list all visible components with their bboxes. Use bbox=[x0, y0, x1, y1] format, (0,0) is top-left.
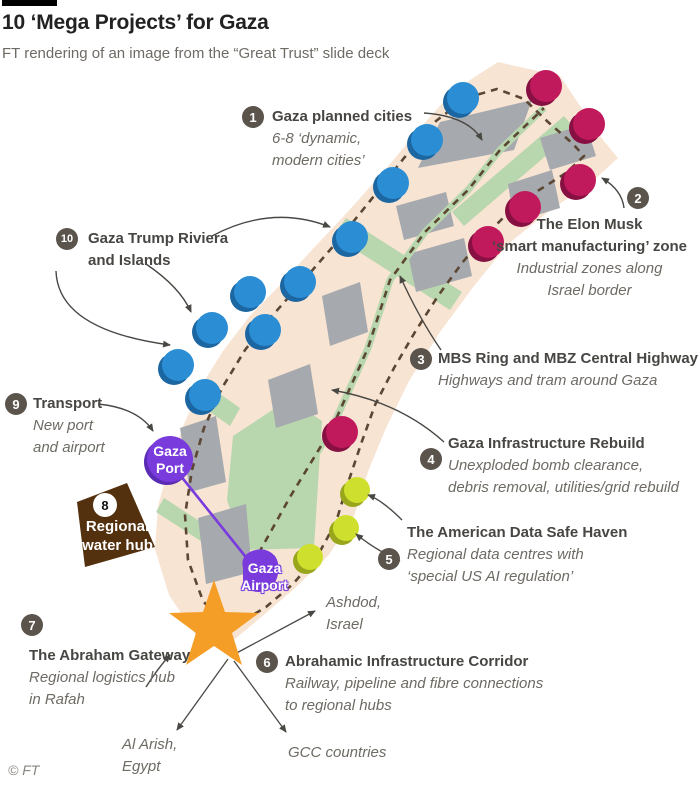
label-sub: 6-8 ‘dynamic, bbox=[272, 128, 412, 150]
port-line2: Port bbox=[140, 460, 200, 477]
label-sub: Unexploded bomb clearance, bbox=[448, 455, 679, 477]
annotation-number-8: 8 bbox=[93, 493, 117, 517]
destination-ashdod: Ashdod, Israel bbox=[326, 592, 381, 636]
page-subtitle: FT rendering of an image from the “Great… bbox=[2, 45, 389, 62]
label-title: ‘smart manufacturing’ zone bbox=[487, 236, 692, 258]
gaza-port-label: Gaza Port bbox=[140, 443, 200, 477]
label-sub: debris removal, utilities/grid rebuild bbox=[448, 477, 679, 499]
destination-line: Israel bbox=[326, 614, 381, 636]
destination-line: Al Arish, bbox=[122, 734, 177, 756]
riviera-island-circle bbox=[234, 276, 266, 308]
label-sub: to regional hubs bbox=[285, 695, 543, 717]
arrow-data-haven-1 bbox=[368, 495, 402, 520]
gaza-airport-label: Gaza Airport bbox=[222, 560, 307, 594]
industrial-zone-circle bbox=[530, 70, 562, 102]
annotation-number-7: 7 bbox=[21, 614, 43, 636]
ft-top-bar bbox=[2, 0, 57, 6]
label-abraham-gateway: The Abraham Gateway Regional logistics h… bbox=[29, 645, 190, 711]
arrow-musk-zone bbox=[602, 178, 624, 208]
ft-credit: © FT bbox=[8, 762, 39, 778]
label-sub: New port bbox=[33, 415, 105, 437]
destination-line: Ashdod, bbox=[326, 592, 381, 614]
riviera-island-circle bbox=[284, 266, 316, 298]
label-sub: Israel border bbox=[487, 280, 692, 302]
label-sub: Industrial zones along bbox=[487, 258, 692, 280]
riviera-island-circle bbox=[447, 82, 479, 114]
annotation-number-5: 5 bbox=[378, 548, 400, 570]
riviera-island-circle bbox=[189, 379, 221, 411]
annotation-number-4: 4 bbox=[420, 448, 442, 470]
label-title: Abrahamic Infrastructure Corridor bbox=[285, 651, 543, 673]
destination-line: GCC countries bbox=[288, 742, 386, 764]
label-sub: ‘special US AI regulation’ bbox=[407, 566, 627, 588]
destination-gcc: GCC countries bbox=[288, 742, 386, 764]
label-trump-riviera: Gaza Trump Riviera and Islands bbox=[88, 228, 228, 272]
label-title: Gaza Trump Riviera bbox=[88, 228, 228, 250]
label-sub: in Rafah bbox=[29, 689, 190, 711]
label-sub: Regional data centres with bbox=[407, 544, 627, 566]
riviera-island-circle bbox=[162, 349, 194, 381]
industrial-zone-circle bbox=[326, 416, 358, 448]
label-sub: Regional logistics hub bbox=[29, 667, 190, 689]
riviera-island-circle bbox=[196, 312, 228, 344]
water-hub-label: Regional water hub bbox=[70, 517, 165, 555]
label-mbs-ring: MBS Ring and MBZ Central Highway Highway… bbox=[438, 348, 698, 392]
label-title: The Abraham Gateway bbox=[29, 645, 190, 667]
label-title: The American Data Safe Haven bbox=[407, 522, 627, 544]
label-title: Gaza planned cities bbox=[272, 106, 412, 128]
label-title: Gaza Infrastructure Rebuild bbox=[448, 433, 679, 455]
arrow-riviera-1 bbox=[212, 217, 330, 236]
label-infrastructure: Gaza Infrastructure Rebuild Unexploded b… bbox=[448, 433, 679, 499]
label-corridor: Abrahamic Infrastructure Corridor Railwa… bbox=[285, 651, 543, 717]
industrial-zone-circle bbox=[573, 108, 605, 140]
water-hub-line1: Regional bbox=[70, 517, 165, 536]
arrow-riviera-3 bbox=[56, 271, 170, 345]
arrow-transport bbox=[98, 404, 153, 431]
port-line1: Gaza bbox=[140, 443, 200, 460]
data-centre-circle bbox=[333, 515, 359, 541]
airport-line2: Airport bbox=[222, 577, 307, 594]
page-title: 10 ‘Mega Projects’ for Gaza bbox=[2, 11, 269, 35]
label-sub: Highways and tram around Gaza bbox=[438, 370, 698, 392]
annotation-number-3: 3 bbox=[410, 348, 432, 370]
label-title: and Islands bbox=[88, 250, 228, 272]
water-hub-line2: water hub bbox=[70, 536, 165, 555]
destination-line: Egypt bbox=[122, 756, 177, 778]
label-musk-zone: The Elon Musk ‘smart manufacturing’ zone… bbox=[487, 214, 692, 302]
label-transport: Transport New port and airport bbox=[33, 393, 105, 459]
label-sub: modern cities’ bbox=[272, 150, 412, 172]
annotation-number-10: 10 bbox=[56, 228, 78, 250]
label-sub: and airport bbox=[33, 437, 105, 459]
corridor-line-gcc bbox=[234, 661, 286, 732]
data-centre-circle bbox=[344, 477, 370, 503]
annotation-number-6: 6 bbox=[256, 651, 278, 673]
label-planned-cities: Gaza planned cities 6-8 ‘dynamic, modern… bbox=[272, 106, 412, 172]
riviera-island-circle bbox=[336, 221, 368, 253]
label-title: MBS Ring and MBZ Central Highway bbox=[438, 348, 698, 370]
infographic-page: 10 ‘Mega Projects’ for Gaza FT rendering… bbox=[0, 0, 700, 787]
label-title: The Elon Musk bbox=[487, 214, 692, 236]
riviera-island-circle bbox=[411, 124, 443, 156]
riviera-island-circle bbox=[249, 314, 281, 346]
label-data-haven: The American Data Safe Haven Regional da… bbox=[407, 522, 627, 588]
annotation-number-1: 1 bbox=[242, 106, 264, 128]
annotation-number-9: 9 bbox=[5, 393, 27, 415]
annotation-number-2: 2 bbox=[627, 187, 649, 209]
label-sub: Railway, pipeline and fibre connections bbox=[285, 673, 543, 695]
airport-line1: Gaza bbox=[222, 560, 307, 577]
destination-alarish: Al Arish, Egypt bbox=[122, 734, 177, 778]
label-title: Transport bbox=[33, 393, 105, 415]
industrial-zone-circle bbox=[564, 164, 596, 196]
